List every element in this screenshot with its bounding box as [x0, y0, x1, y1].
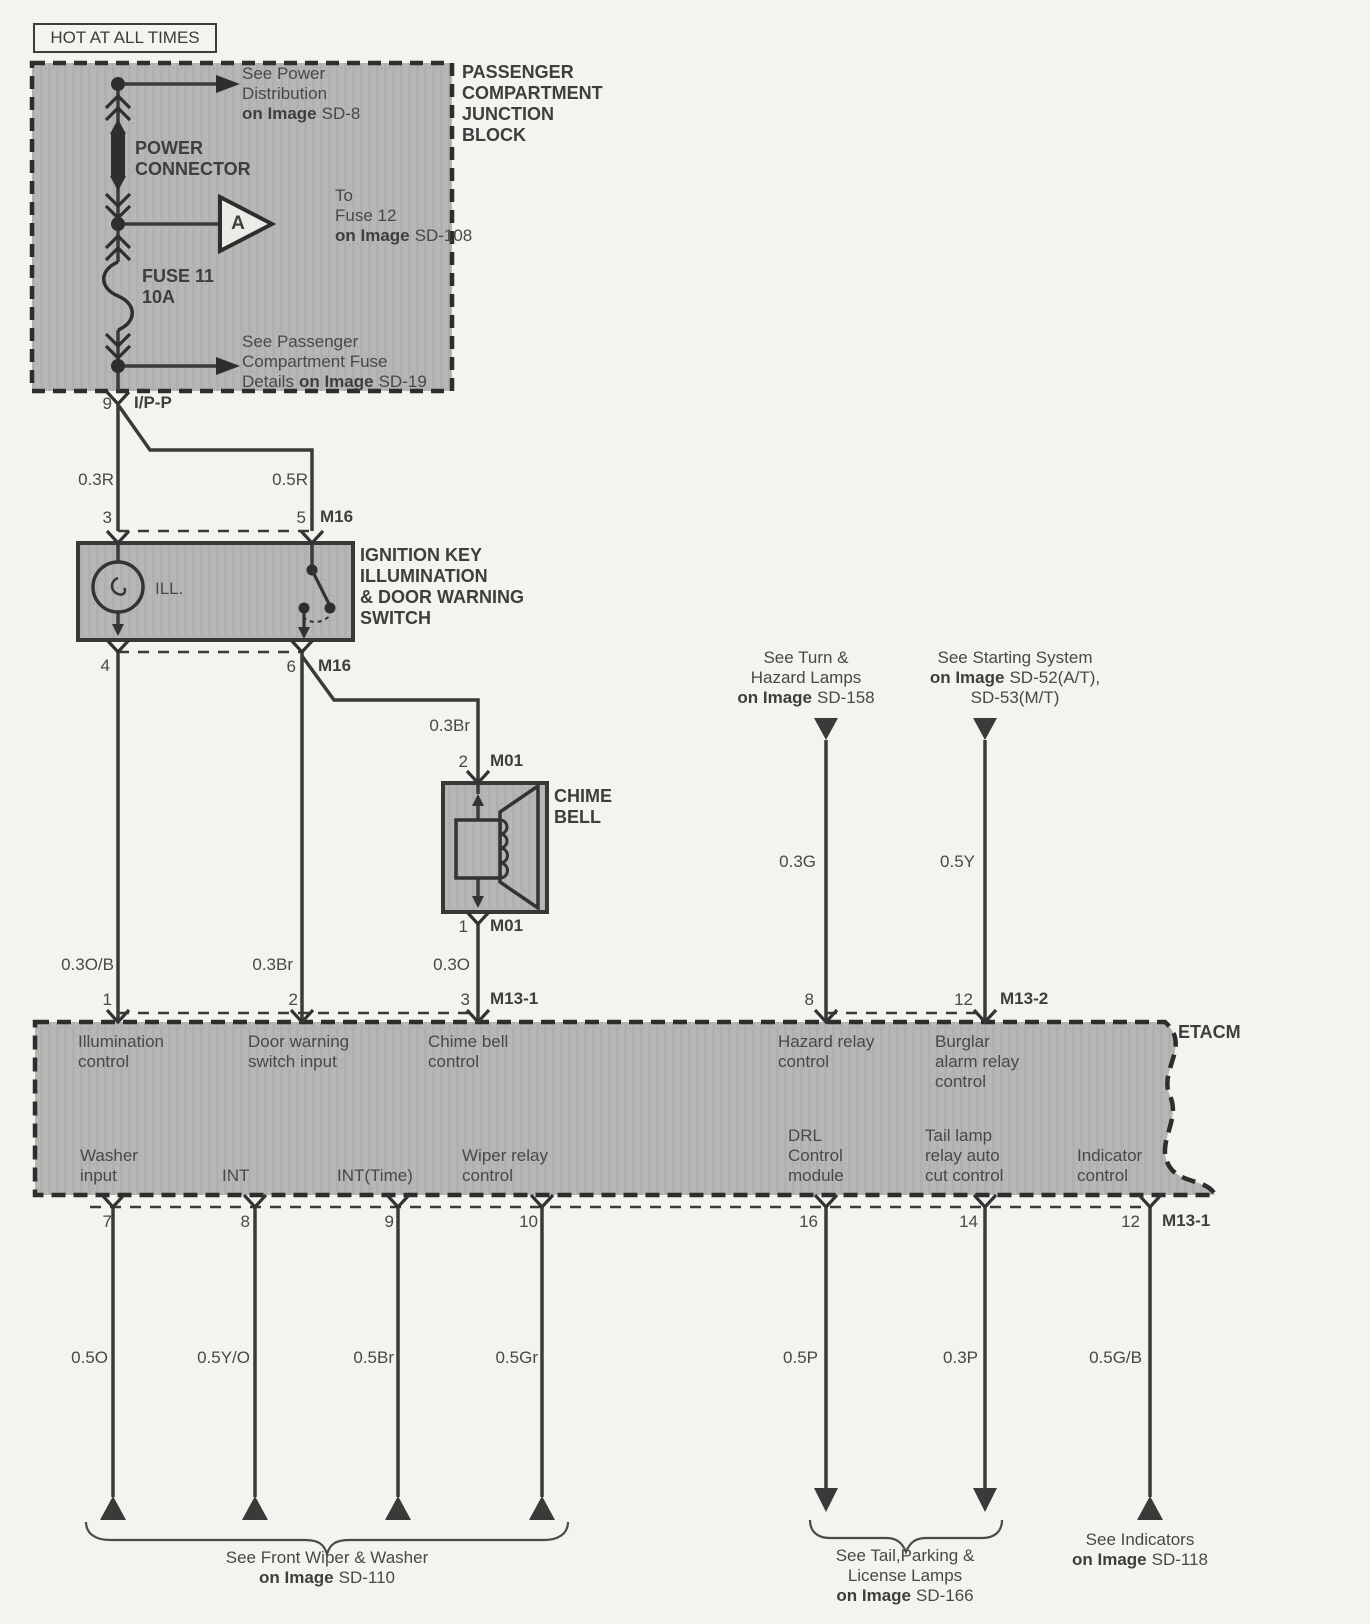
junction-block-title: PASSENGER COMPARTMENT JUNCTION BLOCK	[462, 62, 603, 146]
etacm-label-wiper-relay-control: Wiper relay control	[462, 1146, 548, 1186]
wire-label-0-3p: 0.3P	[918, 1348, 978, 1368]
triangle-a-letter: A	[228, 214, 248, 234]
pin-number-chime-1: 1	[408, 917, 468, 937]
pin-number-3: 3	[52, 508, 112, 528]
lamp-label: ILL.	[155, 579, 183, 599]
pin-number-14: 14	[918, 1212, 978, 1232]
note-power-distribution: See Power Distribution on ImageSD-8	[242, 64, 360, 124]
note-to-fuse12: To Fuse 12 on ImageSD-108	[335, 186, 472, 246]
note-line: See Starting System	[865, 648, 1165, 668]
etacm-label-line: control	[1077, 1166, 1142, 1186]
pin-number-10: 10	[478, 1212, 538, 1232]
switch-contact-right	[325, 603, 336, 614]
switch-title-line: IGNITION KEY	[360, 545, 524, 566]
pin-number-16: 16	[758, 1212, 818, 1232]
pin-number-7: 7	[52, 1212, 112, 1232]
etacm-label-door-warning: Door warning switch input	[248, 1032, 349, 1072]
etacm-label-indicator-control: Indicator control	[1077, 1146, 1142, 1186]
note-line: See Power	[242, 64, 360, 84]
note-bold: on Image	[259, 1568, 334, 1587]
arrow-to-washer	[100, 1496, 126, 1520]
etacm-label-line: control	[462, 1166, 548, 1186]
switch-title-line: & DOOR WARNING	[360, 587, 524, 608]
junction-block-title-line: BLOCK	[462, 125, 603, 146]
etacm-label-line: control	[78, 1052, 164, 1072]
note-bold: on Image	[737, 688, 812, 707]
connector-name-m16-bottom: M16	[318, 656, 351, 676]
pin-number-6: 6	[236, 657, 296, 677]
note-line: SD-53(M/T)	[865, 688, 1165, 708]
etacm-label-line: alarm relay	[935, 1052, 1019, 1072]
wiring-diagram-graphics	[0, 0, 1370, 1624]
wire-label-0-5p: 0.5P	[758, 1348, 818, 1368]
etacm-label-drl-control-module: DRL Control module	[788, 1126, 844, 1186]
connector-name-m01-top: M01	[490, 751, 523, 771]
arrow-to-tail-lamps-1	[814, 1488, 838, 1512]
pin-number-ipp: 9	[52, 394, 112, 414]
note-ref: SD-19	[379, 372, 427, 391]
etacm-label-line: Tail lamp	[925, 1126, 1003, 1146]
wire-label-0-5br: 0.5Br	[334, 1348, 394, 1368]
note-line: on ImageSD-118	[990, 1550, 1290, 1570]
switch-title: IGNITION KEY ILLUMINATION & DOOR WARNING…	[360, 545, 524, 629]
note-line: on ImageSD-110	[177, 1568, 477, 1588]
wire-label-0-5gb: 0.5G/B	[1082, 1348, 1142, 1368]
note-line: Compartment Fuse	[242, 352, 427, 372]
note-line: Fuse 12	[335, 206, 472, 226]
note-ref: SD-52(A/T),	[1009, 668, 1100, 687]
etacm-label-illumination-control: Illumination control	[78, 1032, 164, 1072]
etacm-label-line: Washer	[80, 1146, 138, 1166]
pin-number-etacm-3: 3	[410, 990, 470, 1010]
switch-contact-left	[299, 603, 310, 614]
wire-label-0-3r: 0.3R	[54, 470, 114, 490]
connector-name-m13-2: M13-2	[1000, 989, 1048, 1009]
power-connector-bar	[111, 134, 125, 176]
switch-title-line: ILLUMINATION	[360, 566, 524, 587]
pin-number-12b: 12	[1080, 1212, 1140, 1232]
pin-number-etacm-1: 1	[52, 990, 112, 1010]
pin-number-8b: 8	[190, 1212, 250, 1232]
wire-label-0-3ob: 0.3O/B	[54, 955, 114, 975]
note-line: To	[335, 186, 472, 206]
switch-title-line: SWITCH	[360, 608, 524, 629]
power-connector-label: POWER CONNECTOR	[135, 138, 251, 180]
etacm-label-line: input	[80, 1166, 138, 1186]
junction-block-title-line: JUNCTION	[462, 104, 603, 125]
note-starting-system: See Starting System on ImageSD-52(A/T), …	[865, 648, 1165, 708]
note-ref: SD-108	[415, 226, 473, 245]
etacm-label-line: cut control	[925, 1166, 1003, 1186]
etacm-label-washer-input: Washer input	[80, 1146, 138, 1186]
wire-label-0-3o: 0.3O	[410, 955, 470, 975]
chime-title-line: BELL	[554, 807, 612, 828]
etacm-label-line: relay auto	[925, 1146, 1003, 1166]
etacm-label-line: Wiper relay	[462, 1146, 548, 1166]
etacm-label-line: Control	[788, 1146, 844, 1166]
note-front-wiper-washer: See Front Wiper & Washer on ImageSD-110	[177, 1548, 477, 1588]
note-bold: on Image	[930, 668, 1005, 687]
fuse-label-line: 10A	[142, 287, 214, 308]
note-line: See Passenger	[242, 332, 427, 352]
note-line: on ImageSD-8	[242, 104, 360, 124]
note-line: Detailson ImageSD-19	[242, 372, 427, 392]
note-bold: on Image	[836, 1586, 911, 1605]
etacm-label-int-time: INT(Time)	[337, 1166, 413, 1186]
etacm-label-line: switch input	[248, 1052, 349, 1072]
etacm-label-hazard-relay-control: Hazard relay control	[778, 1032, 874, 1072]
pin-number-chime-2: 2	[408, 752, 468, 772]
junction-dot-3	[111, 359, 125, 373]
pin-fork-etacm-9b	[387, 1195, 409, 1207]
etacm-label-line: Illumination	[78, 1032, 164, 1052]
note-line: See Front Wiper & Washer	[177, 1548, 477, 1568]
connector-name-m13-1-top: M13-1	[490, 989, 538, 1009]
note-bold: on Image	[335, 226, 410, 245]
wire-label-0-5gr: 0.5Gr	[478, 1348, 538, 1368]
wire-label-0-3g: 0.3G	[756, 852, 816, 872]
chime-bell-title: CHIME BELL	[554, 786, 612, 828]
note-ref: SD-110	[339, 1568, 395, 1587]
etacm-label-line: Chime bell	[428, 1032, 508, 1052]
chime-title-line: CHIME	[554, 786, 612, 807]
etacm-label-tail-lamp-relay: Tail lamp relay auto cut control	[925, 1126, 1003, 1186]
etacm-label-line: control	[778, 1052, 874, 1072]
etacm-box	[35, 1022, 1215, 1195]
connector-name-m01-bottom: M01	[490, 916, 523, 936]
pin-fork-etacm-12b	[1139, 1195, 1161, 1207]
hot-at-all-times-tag: HOT AT ALL TIMES	[33, 23, 217, 53]
note-pre: Details	[242, 372, 294, 391]
etacm-label-line: control	[935, 1072, 1019, 1092]
wire-label-0-5o: 0.5O	[48, 1348, 108, 1368]
pin-number-etacm-12: 12	[913, 990, 973, 1010]
etacm-label-line: DRL	[788, 1126, 844, 1146]
wire-label-0-5r: 0.5R	[248, 470, 308, 490]
arrow-to-indicators	[1137, 1496, 1163, 1520]
note-line: on ImageSD-52(A/T),	[865, 668, 1165, 688]
junction-dot-2	[111, 217, 125, 231]
etacm-label-burglar-alarm: Burglar alarm relay control	[935, 1032, 1019, 1092]
pin-fork-etacm-7	[102, 1195, 124, 1207]
etacm-label-line: Hazard relay	[778, 1032, 874, 1052]
etacm-label-chime-bell-control: Chime bell control	[428, 1032, 508, 1072]
speaker-coil-box-icon	[456, 820, 500, 878]
etacm-label-line: module	[788, 1166, 844, 1186]
wire-label-0-3br-branch: 0.3Br	[410, 716, 470, 736]
note-ref: SD-166	[916, 1586, 974, 1605]
power-connector-line: CONNECTOR	[135, 159, 251, 180]
wire-label-0-5yo: 0.5Y/O	[190, 1348, 250, 1368]
pin-number-9b: 9	[334, 1212, 394, 1232]
connector-name-m13-1-bottom: M13-1	[1162, 1211, 1210, 1231]
note-fuse-details: See Passenger Compartment Fuse Detailson…	[242, 332, 427, 392]
note-ref: SD-8	[322, 104, 361, 123]
arrow-from-starting-system	[973, 718, 997, 740]
wire-label-0-3br: 0.3Br	[233, 955, 293, 975]
pin-number-etacm-8: 8	[754, 990, 814, 1010]
power-connector-line: POWER	[135, 138, 251, 159]
etacm-label-line: control	[428, 1052, 508, 1072]
junction-block-title-line: PASSENGER	[462, 62, 603, 83]
connector-name-ipp: I/P-P	[134, 393, 172, 413]
etacm-name: ETACM	[1178, 1022, 1241, 1043]
etacm-label-line: Indicator	[1077, 1146, 1142, 1166]
arrow-to-int-time	[385, 1496, 411, 1520]
connector-name-m16-top: M16	[320, 507, 353, 527]
note-bold: on Image	[1072, 1550, 1147, 1569]
pin-number-4: 4	[50, 656, 110, 676]
junction-block-title-line: COMPARTMENT	[462, 83, 603, 104]
wiring-diagram-page: HOT AT ALL TIMES PASSENGER COMPARTMENT J…	[0, 0, 1370, 1624]
fuse-label: FUSE 11 10A	[142, 266, 214, 308]
note-line: on ImageSD-108	[335, 226, 472, 246]
fuse-label-line: FUSE 11	[142, 266, 214, 287]
etacm-label-int: INT	[222, 1166, 249, 1186]
arrow-to-int	[242, 1496, 268, 1520]
note-bold: on Image	[242, 104, 317, 123]
note-ref: SD-118	[1152, 1550, 1208, 1569]
junction-dot-1	[111, 77, 125, 91]
pin-number-etacm-2: 2	[238, 990, 298, 1010]
pin-number-5: 5	[246, 508, 306, 528]
arrow-from-turn-hazard	[814, 718, 838, 740]
arrow-to-wiper-relay	[529, 1496, 555, 1520]
note-bold: on Image	[299, 372, 374, 391]
arrow-to-tail-lamps-2	[973, 1488, 997, 1512]
note-line: on ImageSD-166	[755, 1586, 1055, 1606]
note-indicators: See Indicators on ImageSD-118	[990, 1530, 1290, 1570]
etacm-label-line: Burglar	[935, 1032, 1019, 1052]
note-line: Distribution	[242, 84, 360, 104]
note-line: See Indicators	[990, 1530, 1290, 1550]
wire-label-0-5y: 0.5Y	[915, 852, 975, 872]
etacm-label-line: Door warning	[248, 1032, 349, 1052]
